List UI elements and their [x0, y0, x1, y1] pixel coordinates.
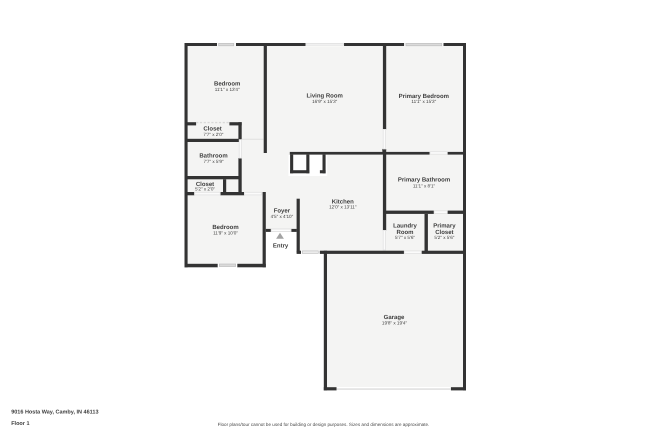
svg-text:19'8" x 19'4": 19'8" x 19'4"	[382, 321, 408, 326]
svg-text:Primary: Primary	[433, 223, 456, 230]
svg-text:11'1" x 8'1": 11'1" x 8'1"	[413, 183, 436, 188]
svg-text:Entry: Entry	[273, 243, 289, 250]
svg-text:Floor 1: Floor 1	[11, 421, 29, 427]
svg-text:9016 Hosta Way, Camby, IN 4611: 9016 Hosta Way, Camby, IN 46113	[11, 409, 98, 415]
svg-text:11'1" x 15'3": 11'1" x 15'3"	[411, 99, 436, 104]
svg-text:12'0" x 13'11": 12'0" x 13'11"	[329, 205, 357, 210]
svg-text:7'7" x 2'0": 7'7" x 2'0"	[203, 132, 223, 137]
svg-text:5'2" x 2'0": 5'2" x 2'0"	[195, 187, 215, 192]
svg-text:5'2" x 5'6": 5'2" x 5'6"	[434, 235, 454, 240]
svg-text:7'7" x 5'9": 7'7" x 5'9"	[203, 159, 223, 164]
svg-text:Laundry: Laundry	[393, 223, 417, 230]
svg-text:11'1" x 13'4": 11'1" x 13'4"	[215, 87, 240, 92]
svg-text:16'9" x 15'3": 16'9" x 15'3"	[312, 99, 338, 104]
svg-text:4'5" x 4'10": 4'5" x 4'10"	[271, 214, 294, 219]
svg-text:5'7" x 5'6": 5'7" x 5'6"	[395, 235, 415, 240]
svg-text:Floor plans/tour cannot be use: Floor plans/tour cannot be used for buil…	[218, 422, 430, 427]
svg-text:11'9" x 10'0": 11'9" x 10'0"	[213, 230, 238, 235]
